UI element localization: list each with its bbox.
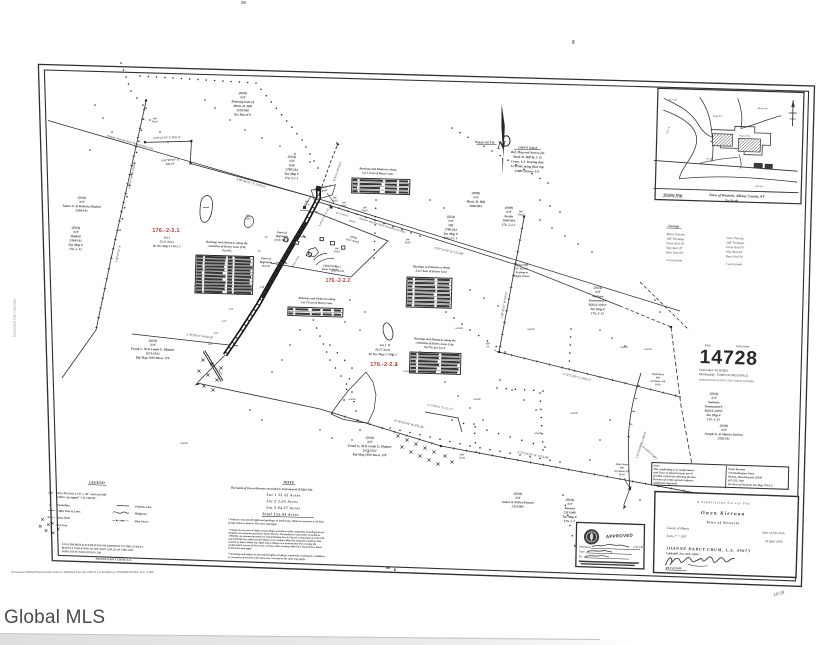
svg-text:176.-2-2.3: 176.-2-2.3	[370, 362, 398, 368]
svg-text:By:: By:	[579, 555, 583, 558]
svg-text:woods: woods	[527, 328, 534, 331]
svg-text:11/64: 11/64	[459, 457, 465, 460]
svg-text:County of Albany: County of Albany	[667, 526, 690, 531]
svg-text:Stage Rd: Stage Rd	[713, 115, 722, 118]
svg-text:24 April 2009: 24 April 2009	[765, 539, 783, 544]
svg-text:176.-2-1.2: 176.-2-1.2	[502, 223, 516, 227]
svg-text:11/64: 11/64	[655, 383, 662, 386]
svg-text:2 acres (min): 2 acres (min)	[666, 258, 683, 263]
svg-text:L18: L18	[259, 286, 265, 289]
svg-text:176.-2-7: 176.-2-7	[564, 519, 576, 523]
svg-text:2313/982: 2313/982	[510, 504, 524, 508]
svg-text:176.-2-13: 176.-2-13	[707, 417, 720, 421]
svg-text:woods: woods	[534, 432, 541, 435]
svg-text:176.-2-2.1: 176.-2-2.1	[152, 228, 180, 234]
svg-text:Zoning:: Zoning:	[667, 224, 679, 228]
svg-text:woods: woods	[455, 327, 462, 330]
svg-text:Rear Yard 50': Rear Yard 50'	[665, 250, 683, 255]
svg-text:IPF: IPF	[47, 492, 53, 495]
svg-text:Project Site: Project Site	[738, 134, 750, 137]
svg-text:to the same map apply.: to the same map apply.	[228, 547, 252, 551]
svg-text:woods: woods	[570, 412, 577, 415]
svg-text:woods: woods	[473, 398, 480, 401]
svg-text:199.31′: 199.31′	[166, 162, 175, 166]
svg-text:West Rd: West Rd	[755, 185, 764, 188]
svg-text:NOTE: NOTE	[282, 480, 294, 485]
svg-text:(Lot 3): (Lot 3)	[262, 264, 270, 268]
svg-text:Centerline: Centerline	[57, 503, 70, 507]
svg-text:Hagen Traver: Hagen Traver	[513, 275, 531, 278]
svg-text:Fnd E: Fnd E	[362, 209, 369, 212]
svg-text:176.-2-2.2: 176.-2-2.2	[326, 278, 351, 284]
svg-text:MAGNETIC: MAGNETIC	[476, 141, 496, 145]
svg-text:8.02 Acres: 8.02 Acres	[331, 269, 345, 273]
svg-text:Utility Pole & Lines: Utility Pole & Lines	[57, 509, 82, 514]
svg-text:Tax Parcel 9: Tax Parcel 9	[234, 112, 251, 116]
svg-text:11880 Drawer 1/9.: 11880 Drawer 1/9.	[515, 169, 540, 174]
svg-text:Bear Rd: Bear Rd	[669, 98, 678, 101]
svg-text:2846/504: 2846/504	[468, 204, 482, 208]
svg-text:Fnd E: Fnd E	[245, 217, 252, 220]
svg-text:5 acres (min): 5 acres (min)	[726, 262, 743, 267]
svg-text:Resolution:: Resolution:	[579, 546, 592, 549]
svg-text:woods: woods	[644, 348, 651, 351]
svg-text:Re Tax Map # 176-2-2: Re Tax Map # 176-2-2	[368, 352, 397, 357]
svg-text:Global MLS: Global MLS	[4, 607, 105, 628]
svg-text:L13: L13	[228, 308, 234, 311]
svg-text:Scale 1″ = 200′: Scale 1″ = 200′	[666, 534, 686, 539]
svg-text:N: N	[496, 138, 507, 152]
svg-text:Fnd E: Fnd E	[405, 241, 412, 244]
svg-text:(Lots 1 & 2): (Lots 1 & 2)	[274, 238, 289, 242]
svg-text:176.-2-1.1: 176.-2-1.1	[285, 176, 299, 180]
svg-text:LEGEND: LEGEND	[88, 481, 105, 486]
svg-text:woods: woods	[180, 442, 187, 445]
svg-text:RECEIVED FOR RECORD: RECEIVED FOR RECORD	[13, 298, 17, 337]
svg-text:3304/141: 3304/141	[74, 208, 88, 212]
svg-text:\\ComputerV\Plat7\Kiernan Reco: \\ComputerV\Plat7\Kiernan Records for Wh…	[11, 570, 154, 574]
svg-text:176.-2-13: 176.-2-13	[591, 311, 604, 315]
svg-text:L16: L16	[207, 343, 213, 346]
svg-text:No.#11): No.#11)	[221, 248, 232, 252]
svg-text:176.-1-12: 176.-1-12	[69, 247, 82, 251]
svg-text:L15: L15	[213, 332, 219, 335]
svg-text:Lot 2 5.05 Acres: Lot 2 5.05 Acres	[265, 499, 298, 504]
svg-text:Stone Wall: Stone Wall	[57, 516, 70, 520]
svg-text:No Scale: No Scale	[724, 199, 739, 203]
svg-text:Fnd E: Fnd E	[341, 204, 348, 207]
svg-text:176.-2-1.1: 176.-2-1.1	[444, 236, 458, 240]
svg-text:14728: 14728	[699, 346, 758, 370]
svg-text:Lot 3: Lot 3	[379, 343, 387, 347]
svg-text:2556/141: 2556/141	[716, 436, 730, 440]
svg-text:Fnd E: Fnd E	[518, 213, 525, 216]
svg-text:Fnd E: Fnd E	[152, 120, 159, 123]
svg-text:Wire Fence: Wire Fence	[134, 519, 149, 524]
svg-text:Rear Yard 50': Rear Yard 50'	[725, 254, 743, 259]
svg-text:woods: woods	[620, 346, 627, 349]
svg-text:Rt. 401: Rt. 401	[705, 157, 713, 160]
svg-text:Fnd E: Fnd E	[334, 250, 341, 253]
svg-text:Date:: Date:	[579, 550, 585, 553]
svg-text:Hedgerow: Hedgerow	[134, 511, 147, 515]
svg-text:woods: woods	[348, 398, 355, 401]
svg-text:2:52 PM: 2:52 PM	[633, 545, 643, 549]
svg-text:11/64: 11/64	[619, 473, 626, 476]
svg-text:Property Line: Property Line	[135, 504, 152, 509]
svg-text:State of New York: State of New York	[762, 531, 785, 536]
svg-text:L14: L14	[221, 320, 227, 323]
svg-text:woods: woods	[403, 370, 410, 373]
svg-text:Wet Area: Wet Area	[56, 523, 68, 527]
svg-text:Re Tax Map # 176-2-2: Re Tax Map # 176-2-2	[153, 244, 181, 249]
svg-text:Albany Rd: Albany Rd	[756, 107, 768, 110]
